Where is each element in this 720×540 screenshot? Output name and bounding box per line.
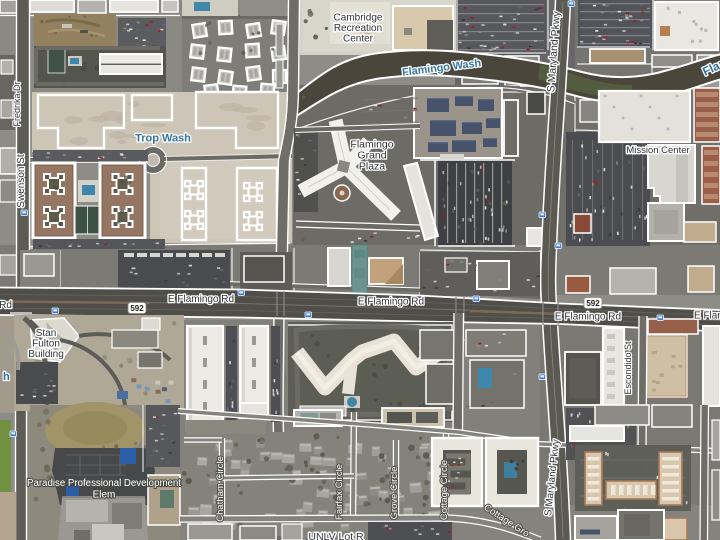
svg-text:UNLV Lot R: UNLV Lot R	[308, 531, 364, 540]
svg-text:Trop Wash: Trop Wash	[135, 133, 191, 145]
svg-text:Rd: Rd	[0, 300, 12, 311]
svg-text:E Flamingo Rd: E Flamingo Rd	[555, 312, 621, 323]
svg-text:Fulton: Fulton	[32, 339, 60, 350]
svg-text:Paradise Professional Developm: Paradise Professional Development	[27, 478, 181, 489]
svg-text:Recreation: Recreation	[334, 23, 382, 34]
svg-text:Center: Center	[343, 34, 374, 45]
svg-text:E Flamingo Rd: E Flamingo Rd	[168, 294, 234, 305]
svg-text:Stan: Stan	[36, 328, 57, 339]
svg-text:Plaza: Plaza	[359, 161, 385, 173]
svg-text:Fredrika Dr: Fredrika Dr	[12, 81, 22, 126]
svg-text:Chatham Circle: Chatham Circle	[215, 456, 226, 521]
svg-text:Mission Center: Mission Center	[626, 145, 689, 156]
svg-text:592: 592	[586, 299, 600, 308]
svg-text:592: 592	[130, 304, 144, 313]
svg-text:Fairfax Circle: Fairfax Circle	[334, 464, 345, 520]
svg-text:Cambridge: Cambridge	[334, 13, 383, 24]
svg-text:Cottage Circle: Cottage Circle	[439, 460, 450, 520]
svg-text:Escondido St: Escondido St	[623, 341, 633, 395]
svg-text:E Flamingo Rd: E Flamingo Rd	[358, 297, 424, 308]
svg-text:Elem: Elem	[93, 490, 116, 501]
svg-text:Building: Building	[28, 349, 64, 360]
svg-text:Swenson St: Swenson St	[16, 154, 27, 208]
svg-text:E Flamingo Rd: E Flamingo Rd	[694, 311, 720, 322]
svg-text:Grove Circle: Grove Circle	[389, 467, 400, 520]
svg-text:h: h	[3, 371, 10, 383]
